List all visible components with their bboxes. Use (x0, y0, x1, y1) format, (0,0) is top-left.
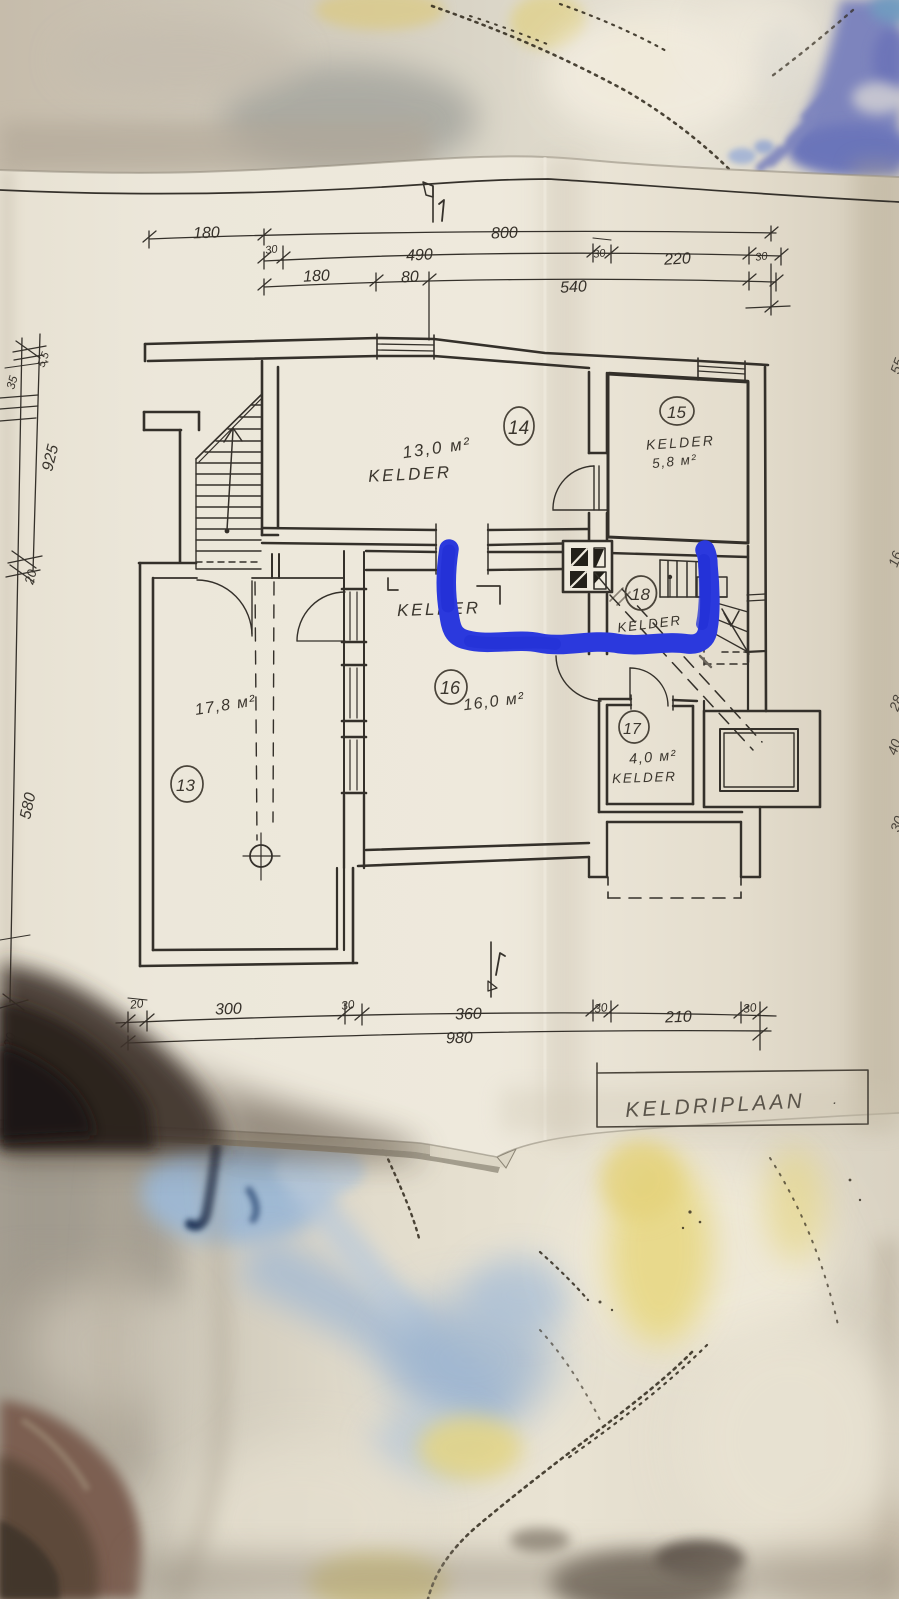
svg-text:490: 490 (406, 246, 434, 264)
svg-text:14: 14 (508, 418, 529, 439)
svg-text:20: 20 (128, 996, 144, 1012)
svg-text:30: 30 (593, 1000, 608, 1016)
svg-text:980: 980 (446, 1030, 473, 1047)
svg-text:17: 17 (623, 721, 642, 738)
svg-text:18: 18 (631, 585, 650, 604)
svg-text:300: 300 (215, 1001, 242, 1019)
svg-text:540: 540 (560, 278, 588, 296)
svg-text:80: 80 (401, 269, 420, 287)
svg-text:180: 180 (303, 267, 331, 285)
svg-text:13: 13 (176, 776, 195, 795)
svg-text:220: 220 (663, 250, 692, 268)
svg-text:180: 180 (193, 224, 220, 242)
svg-text:30: 30 (742, 1000, 757, 1016)
svg-text:800: 800 (491, 225, 518, 243)
svg-text:KELDER: KELDER (612, 769, 677, 786)
svg-text:360: 360 (455, 1006, 482, 1024)
svg-text:210: 210 (664, 1009, 692, 1027)
svg-text:15: 15 (667, 403, 686, 422)
svg-text:.: . (833, 1091, 837, 1108)
svg-text:16: 16 (440, 678, 461, 698)
svg-text:30: 30 (340, 997, 355, 1013)
